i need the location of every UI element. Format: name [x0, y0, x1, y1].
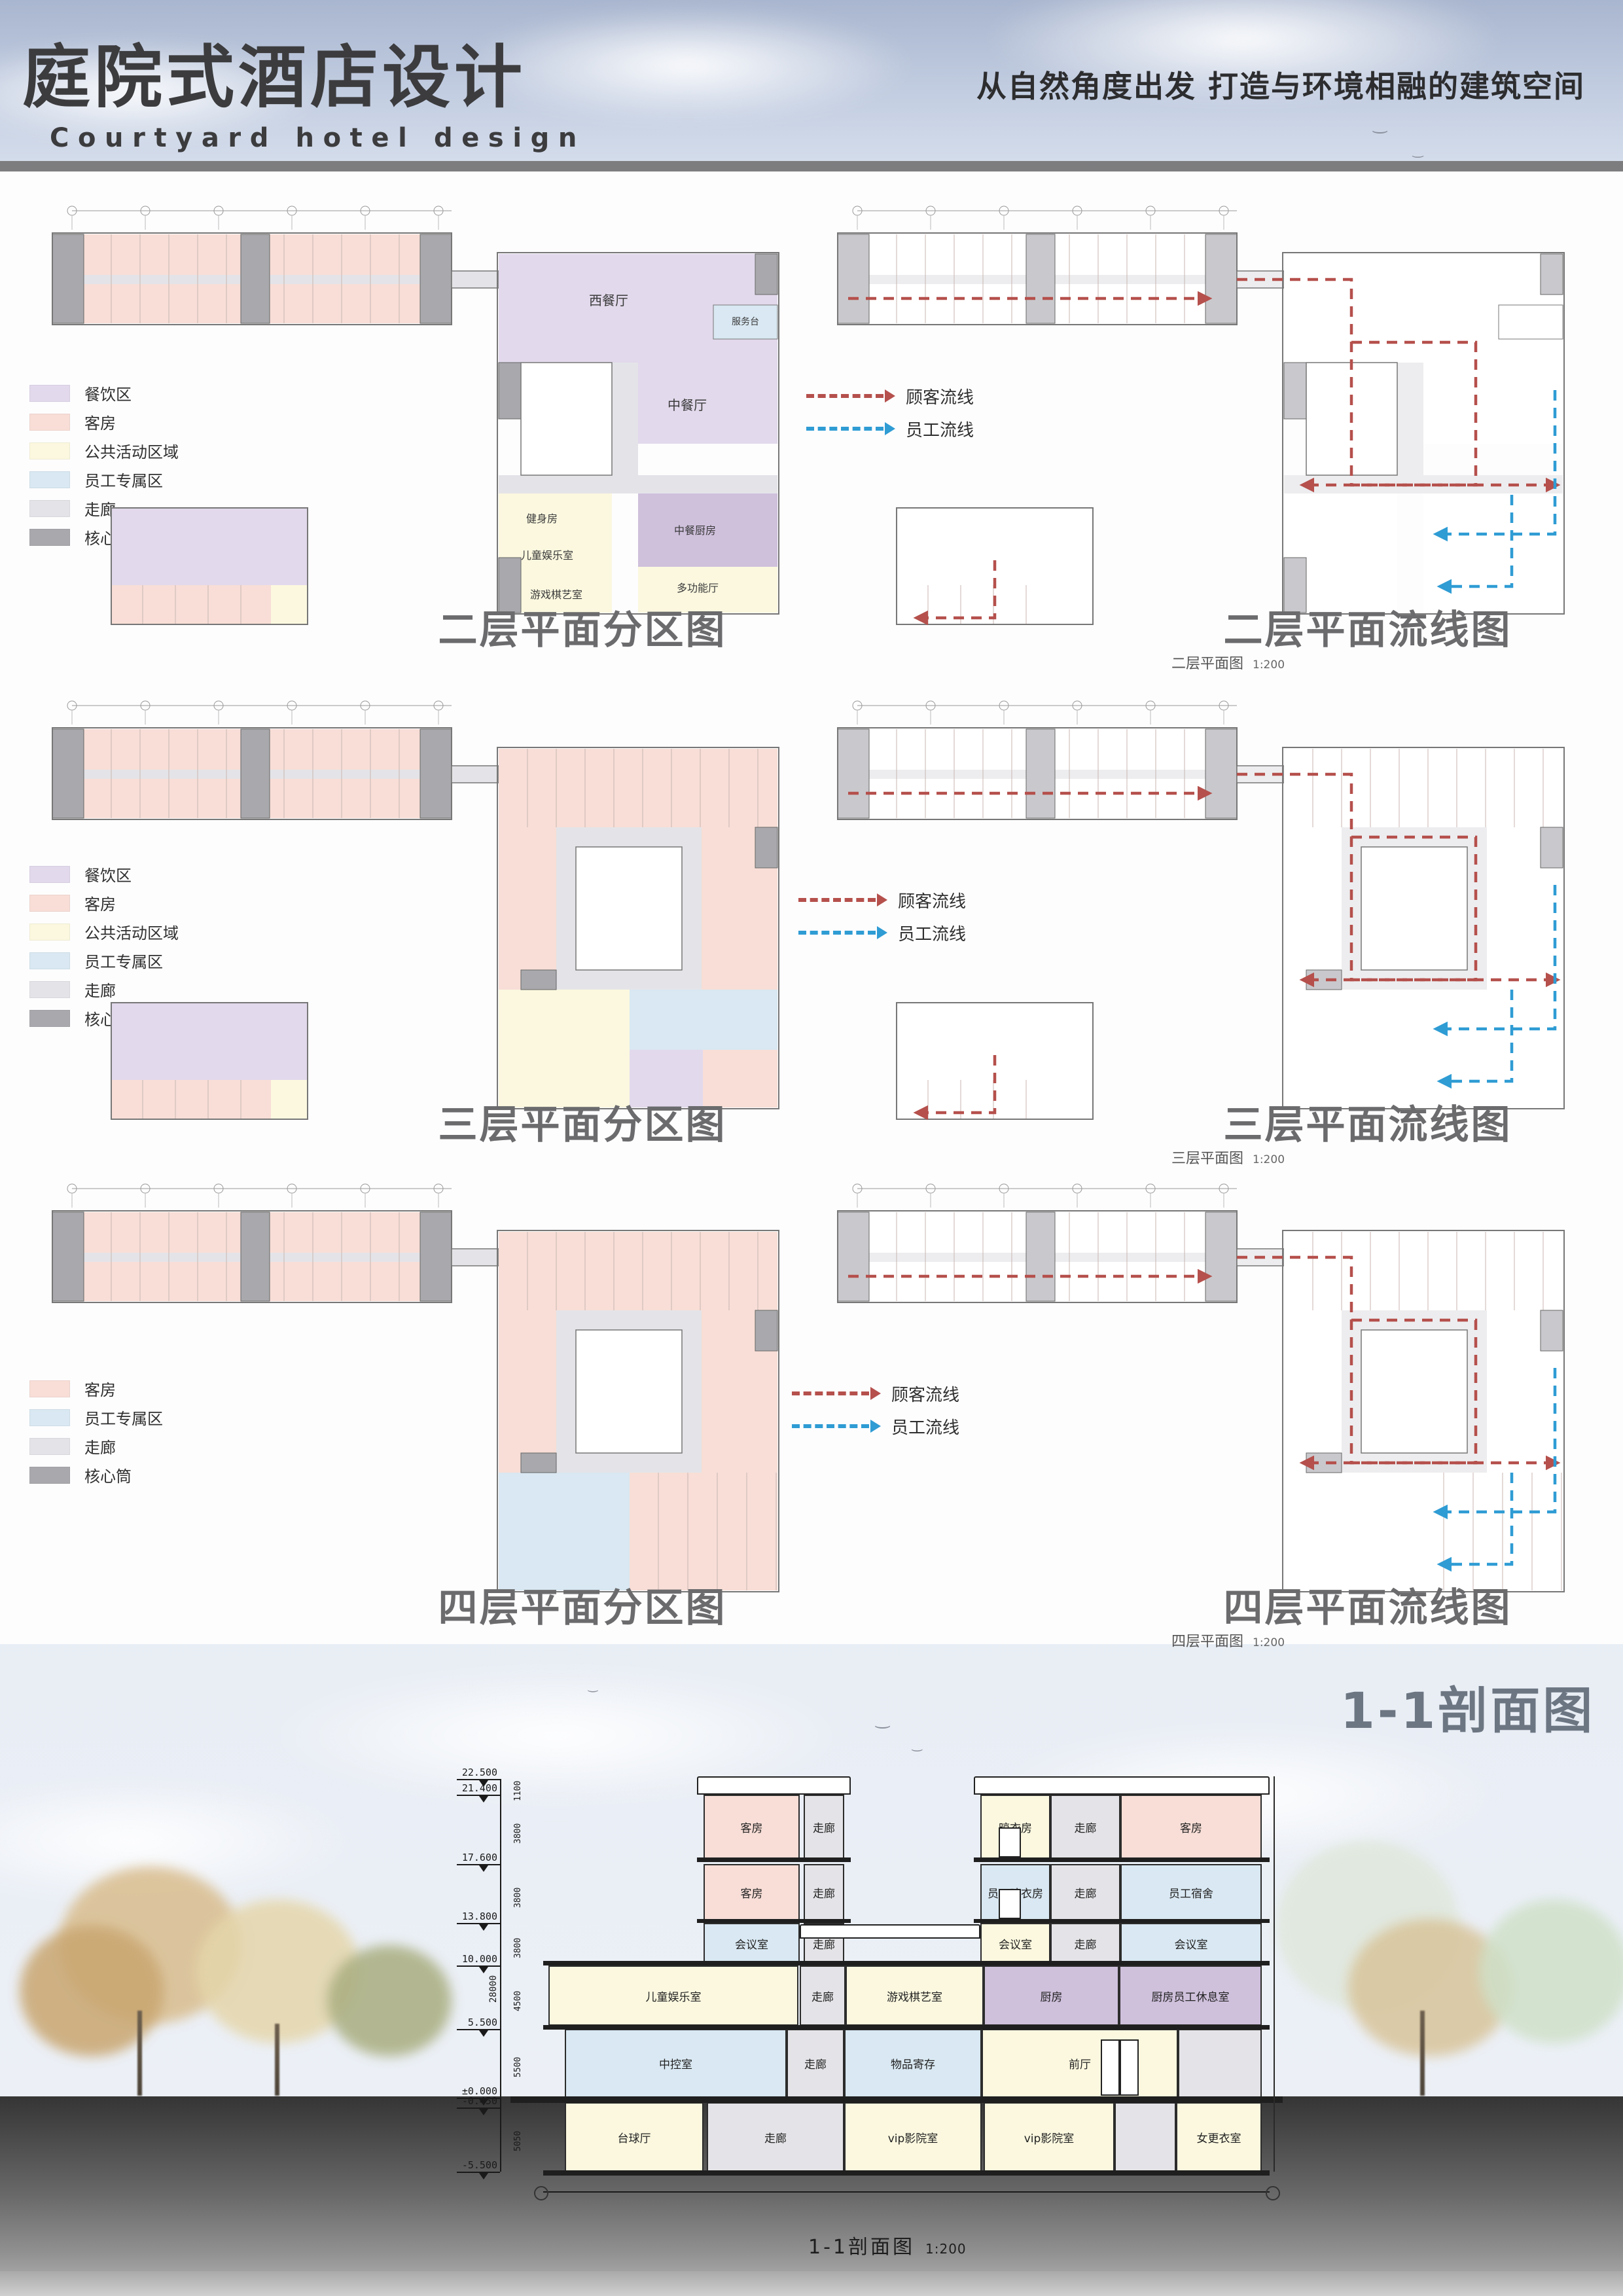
section-caption-text: 1-1剖面图	[808, 2236, 915, 2259]
section-room: 厨房	[984, 1965, 1119, 2026]
floor-slab	[697, 1857, 851, 1862]
elevation-tick	[457, 1779, 500, 1780]
elevation-label: 13.800	[445, 1910, 497, 1922]
right-dim-line	[1274, 1776, 1275, 2172]
elevation-tick	[457, 2029, 500, 2030]
ground-fade	[0, 2271, 1623, 2296]
section-caption-scale: 1:200	[925, 2241, 967, 2257]
room-label: 走廊	[804, 2055, 827, 2072]
section-room: 儿童娱乐室	[548, 1965, 798, 2026]
section-room: vip影院室	[984, 2102, 1115, 2172]
section-room: 前厅	[982, 2029, 1178, 2098]
section-room: 会议室	[704, 1923, 800, 1964]
ground-slab	[510, 2096, 1283, 2103]
room-label: 客房	[1180, 1819, 1202, 1835]
elevation-tick	[457, 2108, 500, 2109]
dim-label: 5050	[513, 2131, 523, 2151]
plan-sketch-flow-3f	[818, 689, 1577, 1147]
room-label: 走廊	[1075, 1819, 1097, 1835]
elevation-label: 10.000	[445, 1953, 497, 1965]
header-slogan: 从自然角度出发 打造与环境相融的建筑空间	[976, 63, 1585, 106]
section-area: 1-1剖面图 ⌣ ⌣ ⌣ 客房走廊晾衣房走廊客房客房走廊员工晾衣房走廊员工宿舍会…	[0, 1644, 1623, 2296]
section-title: 1-1剖面图	[1340, 1670, 1595, 1742]
section-room: 厨房员工休息室	[1119, 1965, 1262, 2026]
section-room: 女更衣室	[1176, 2102, 1262, 2172]
room-label: 走廊	[1075, 1884, 1097, 1901]
room-label: 走廊	[1075, 1935, 1097, 1952]
svg-text:健身房: 健身房	[526, 512, 558, 525]
total-dim-label: 28000	[488, 1975, 499, 2003]
elevation-label: 21.400	[445, 1782, 497, 1794]
svg-text:中餐厅: 中餐厅	[668, 397, 707, 413]
section-caption: 1-1剖面图1:200	[808, 2231, 967, 2259]
section-room: vip影院室	[844, 2102, 982, 2172]
dim-label: 3800	[513, 1938, 523, 1958]
bird-icon: ⌣	[586, 1683, 599, 1697]
tree	[20, 1926, 164, 2056]
dim-label: 1100	[513, 1781, 523, 1801]
section-room: 中控室	[565, 2029, 787, 2098]
tree-trunk	[275, 2024, 279, 2096]
room-label: 女更衣室	[1197, 2129, 1241, 2145]
section-room: 客房	[704, 1864, 800, 1921]
elevation-marker	[479, 1865, 488, 1872]
room-label: 走廊	[764, 2129, 787, 2145]
axis-bubble	[1266, 2186, 1280, 2200]
bird-icon: ⌣	[1371, 121, 1389, 141]
header-divider-bar	[0, 161, 1623, 171]
room-label: 厨房员工休息室	[1152, 1988, 1230, 2004]
room-label: 会议室	[735, 1935, 768, 1952]
title-en: Courtyard hotel design	[50, 123, 586, 153]
revolving-door-icon	[1101, 2039, 1139, 2096]
tree-trunk	[137, 2011, 142, 2096]
door-icon	[999, 1889, 1021, 1919]
section-room: 游戏棋艺室	[846, 1965, 984, 2026]
plan-sketch-zone-2f: 西餐厅中餐厅服务台健身房儿童娱乐室游戏棋艺室中餐厨房多功能厅	[33, 194, 792, 652]
section-room: 走廊	[800, 1965, 846, 2026]
section-room: 走廊	[1050, 1923, 1120, 1964]
plan-caption-text: 三层平面图	[1171, 1151, 1243, 1167]
plan-caption-text: 二层平面图	[1171, 656, 1243, 672]
section-room: 走廊	[707, 2102, 844, 2172]
elevation-marker	[479, 2173, 488, 2179]
section-room: 会议室	[1120, 1923, 1262, 1964]
elevation-tick	[457, 2172, 500, 2173]
dim-label: 5500	[513, 2057, 523, 2077]
room-label: 走廊	[813, 1819, 835, 1835]
elevation-label: 5.500	[445, 2017, 497, 2028]
bird-icon: ⌣	[910, 1742, 923, 1757]
section-room: 走廊	[804, 1864, 844, 1921]
room-label: 会议室	[999, 1935, 1032, 1952]
room-label: 中控室	[659, 2055, 692, 2072]
bird-icon: ⌣	[874, 1716, 891, 1736]
tree	[327, 1945, 452, 2056]
plan-sketch-flow-4f	[818, 1172, 1577, 1630]
elevation-tick	[457, 1795, 500, 1796]
svg-text:西餐厅: 西餐厅	[589, 293, 628, 308]
elevation-label: -0.450	[445, 2095, 497, 2107]
section-room	[1115, 2102, 1176, 2172]
section-room: 走廊	[1050, 1795, 1120, 1859]
room-label: 厨房	[1041, 1988, 1063, 2004]
room-label: vip影院室	[1024, 2129, 1075, 2145]
page-title: 庭院式酒店设计 Courtyard hotel design	[22, 43, 586, 153]
svg-text:服务台: 服务台	[732, 317, 759, 327]
plan-group-flow-3f: 三层平面图1:200 三层平面流线图	[818, 689, 1577, 1147]
plan-title: 二层平面分区图	[373, 598, 792, 655]
room-label: 台球厅	[618, 2129, 651, 2145]
roof-parapet	[974, 1776, 1270, 1795]
section-room: 走廊	[787, 2029, 844, 2098]
room-label: 游戏棋艺室	[887, 1988, 942, 2004]
plan-sketch-zone-4f	[33, 1172, 792, 1630]
dim-label: 3800	[513, 1888, 523, 1908]
axis-bubble	[534, 2186, 548, 2200]
svg-text:儿童娱乐室: 儿童娱乐室	[521, 549, 573, 562]
roof-parapet	[697, 1776, 851, 1795]
title-zh: 庭院式酒店设计	[22, 43, 586, 111]
elevation-label: 17.600	[445, 1852, 497, 1863]
room-label: 会议室	[1175, 1935, 1208, 1952]
elevation-marker	[479, 1796, 488, 1803]
elevation-axis-line	[500, 1779, 501, 2172]
section-room: 台球厅	[565, 2102, 704, 2172]
plan-group-zone-4f: 四层平面分区图	[33, 1172, 792, 1630]
room-label: 前厅	[1069, 2055, 1091, 2072]
floor-slab	[543, 2170, 1270, 2176]
svg-text:中餐厨房: 中餐厨房	[674, 524, 716, 537]
bottom-dim-line	[543, 2191, 1270, 2193]
room-label: 客房	[741, 1884, 763, 1901]
plan-title: 四层平面分区图	[373, 1576, 792, 1633]
elevation-marker	[479, 2030, 488, 2037]
section-room: 员工宿舍	[1120, 1864, 1262, 1921]
room-label: 走廊	[811, 1988, 834, 2004]
section-room: 走廊	[804, 1795, 844, 1859]
floor-slab	[697, 1919, 851, 1923]
room-label: 物品寄存	[891, 2055, 935, 2072]
plan-group-zone-3f: 三层平面分区图	[33, 689, 792, 1147]
section-room: 客房	[704, 1795, 800, 1859]
plan-caption-scale: 1:200	[1253, 1153, 1285, 1166]
elevation-tick	[457, 1864, 500, 1865]
dim-label: 3800	[513, 1823, 523, 1844]
plan-group-flow-4f: 四层平面图1:200 四层平面流线图	[818, 1172, 1577, 1630]
plan-title: 四层平面流线图	[1158, 1576, 1577, 1633]
section-room	[1178, 2029, 1262, 2098]
canopy	[800, 1924, 980, 1939]
elevation-tick	[457, 1965, 500, 1967]
dim-label: 4500	[513, 1991, 523, 2011]
plan-sketch-zone-3f	[33, 689, 792, 1147]
section-room: 物品寄存	[844, 2029, 982, 2098]
plan-title: 二层平面流线图	[1158, 598, 1577, 655]
tree-trunk	[1420, 2011, 1425, 2096]
poster-page: 庭院式酒店设计 Courtyard hotel design 从自然角度出发 打…	[0, 0, 1623, 2296]
elevation-marker	[479, 1924, 488, 1931]
section-room: 走廊	[1050, 1864, 1120, 1921]
room-label: 员工宿舍	[1169, 1884, 1213, 1901]
floor-slab	[543, 2025, 1270, 2030]
elevation-marker	[479, 1967, 488, 1973]
plan-group-flow-2f: 二层平面图1:200 二层平面流线图	[818, 194, 1577, 652]
room-label: 走廊	[813, 1884, 835, 1901]
room-label: 客房	[741, 1819, 763, 1835]
section-drawing: 客房走廊晾衣房走廊客房客房走廊员工晾衣房走廊员工宿舍会议室走廊会议室走廊会议室儿…	[445, 1767, 1283, 2193]
section-room: 客房	[1120, 1795, 1262, 1859]
room-label: 儿童娱乐室	[646, 1988, 702, 2004]
elevation-marker	[479, 2109, 488, 2115]
elevation-tick	[457, 1923, 500, 1924]
plan-title: 三层平面分区图	[373, 1093, 792, 1150]
svg-text:多功能厅: 多功能厅	[677, 582, 719, 594]
plan-caption-scale: 1:200	[1253, 658, 1285, 672]
plan-title: 三层平面流线图	[1158, 1093, 1577, 1150]
room-label: vip影院室	[888, 2129, 938, 2145]
floor-slab	[974, 1857, 1270, 1862]
door-icon	[999, 1827, 1021, 1857]
plan-sketch-flow-2f	[818, 194, 1577, 652]
elevation-label: 22.500	[445, 1767, 497, 1778]
floor-slab	[974, 1919, 1270, 1923]
floor-slab	[543, 1961, 1270, 1965]
section-room: 会议室	[980, 1923, 1050, 1964]
tree	[1479, 1899, 1623, 2043]
plan-group-zone-2f: 西餐厅中餐厅服务台健身房儿童娱乐室游戏棋艺室中餐厨房多功能厅 二层平面分区图	[33, 194, 792, 652]
elevation-label: -5.500	[445, 2159, 497, 2171]
